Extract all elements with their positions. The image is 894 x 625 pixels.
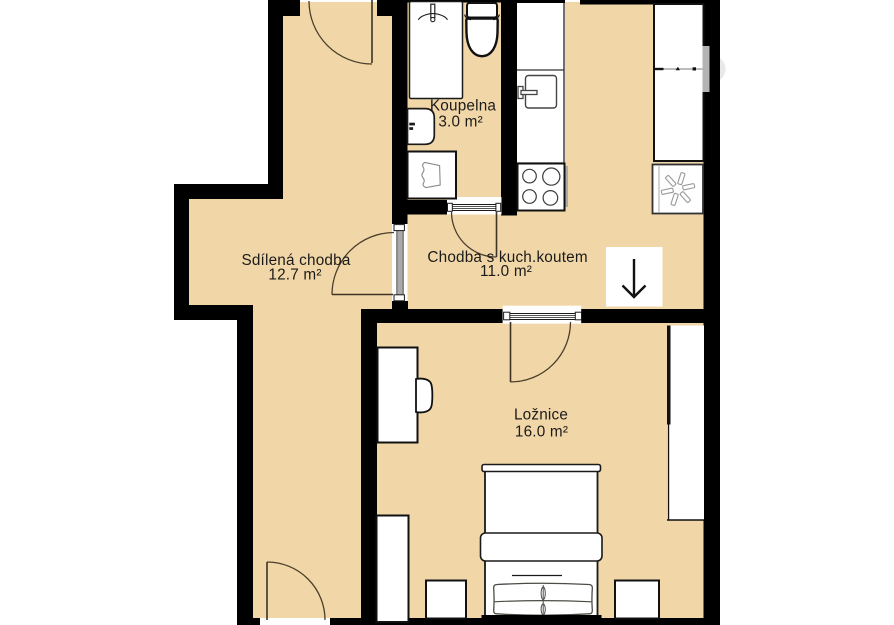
svg-text:Ložnice: Ložnice <box>514 406 568 423</box>
svg-text:11.0 m²: 11.0 m² <box>480 263 532 280</box>
svg-text:12.7 m²: 12.7 m² <box>268 266 321 283</box>
svg-text:Koupelna: Koupelna <box>430 98 497 115</box>
svg-text:3.0 m²: 3.0 m² <box>438 113 483 130</box>
svg-text:16.0 m²: 16.0 m² <box>515 423 568 440</box>
